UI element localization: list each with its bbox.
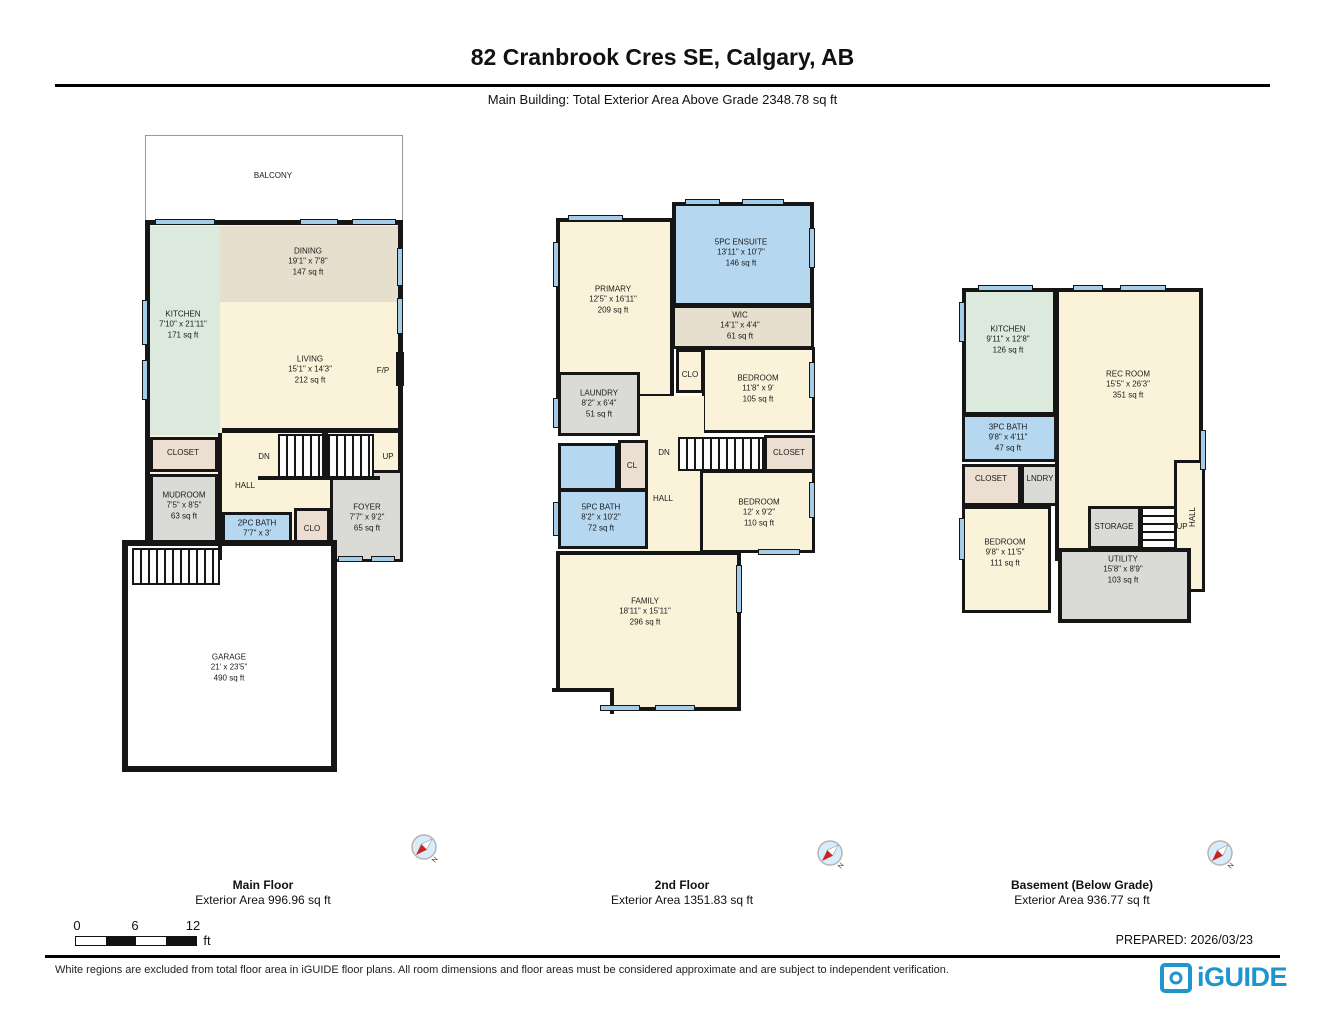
window — [553, 398, 559, 428]
garage-stairs — [132, 548, 220, 585]
window — [300, 219, 338, 225]
room-label-clo-2nd: CLO — [682, 370, 698, 380]
window — [397, 248, 403, 286]
stair-divider — [322, 432, 328, 480]
room-label-5pc-bath: 5PC BATH 8'2" x 10'2" 72 sq ft — [581, 502, 620, 533]
scale-tick-0: 0 — [73, 918, 80, 933]
stairs-label-up-bsmt: UP — [1176, 522, 1187, 532]
room-label-ensuite: 5PC ENSUITE 13'11" x 10'7" 146 sq ft — [715, 237, 767, 268]
room-hall-2nd — [640, 396, 704, 552]
footer-divider — [45, 955, 1280, 958]
wall — [222, 428, 402, 433]
compass-n-label: N — [837, 862, 846, 870]
room-label-closet-main: CLOSET — [167, 448, 199, 458]
room-label-bedroom-1: BEDROOM 11'8" x 9' 105 sq ft — [737, 373, 778, 404]
window — [959, 302, 965, 342]
room-closet-bsmt — [962, 464, 1021, 506]
room-label-primary: PRIMARY 12'5" x 16'11" 209 sq ft — [589, 284, 637, 315]
room-label-bedroom-2: BEDROOM 12' x 9'2" 110 sq ft — [738, 497, 779, 528]
stairs-label-dn-2nd: DN — [658, 448, 670, 458]
compass-icon: N — [1203, 838, 1239, 874]
compass-n-label: N — [1227, 862, 1236, 870]
room-label-bedroom-bsmt: BEDROOM 9'8" x 11'5" 111 sq ft — [984, 537, 1025, 568]
room-label-mudroom: MUDROOM 7'5" x 8'5" 63 sq ft — [162, 490, 205, 521]
iguide-logo: iGUIDE — [1160, 962, 1287, 993]
window — [736, 565, 742, 613]
stairs-label-up-main: UP — [382, 452, 393, 462]
caption-basement: Basement (Below Grade) — [1011, 878, 1153, 892]
room-label-foyer: FOYER 7'7" x 9'2" 65 sq ft — [350, 502, 385, 533]
window — [568, 215, 623, 221]
window — [685, 199, 720, 205]
room-label-garage: GARAGE 21' x 23'5" 490 sq ft — [211, 652, 248, 683]
wall — [258, 476, 380, 480]
room-label-utility: UTILITY 15'8" x 8'9" 103 sq ft — [1103, 554, 1142, 585]
room-label-clo-main: CLO — [304, 524, 320, 534]
wall — [218, 433, 222, 560]
window — [959, 518, 965, 560]
disclaimer-text: White regions are excluded from total fl… — [55, 964, 1035, 976]
room-label-fireplace: F/P — [377, 366, 389, 376]
floor-plan-page: 82 Cranbrook Cres SE, Calgary, AB Main B… — [0, 0, 1325, 1024]
window — [553, 242, 559, 287]
window — [809, 362, 815, 398]
scale-tick-6: 6 — [131, 918, 138, 933]
room-label-hall-2nd: HALL — [653, 494, 673, 504]
room-label-2pc-bath: 2PC BATH 7'7" x 3' — [238, 519, 277, 540]
scale-tick-12: 12 — [186, 918, 200, 933]
caption-basement-area: Exterior Area 936.77 sq ft — [1014, 893, 1149, 907]
window — [1120, 285, 1166, 291]
iguide-logo-text: iGUIDE — [1197, 962, 1287, 993]
window — [809, 228, 815, 268]
scale-segment — [136, 937, 166, 945]
prepared-date: PREPARED: 2026/03/23 — [1116, 933, 1253, 947]
room-label-dining: DINING 19'1" x 7'8" 147 sq ft — [288, 246, 327, 277]
scale-bar — [75, 936, 197, 946]
compass-n-label: N — [431, 856, 440, 864]
window — [553, 502, 559, 536]
window — [1200, 430, 1206, 470]
room-label-wic: WIC 14'1" x 4'4" 61 sq ft — [720, 310, 759, 341]
title-divider — [55, 84, 1270, 87]
window — [155, 219, 215, 225]
compass-icon: N — [813, 838, 849, 874]
window — [1073, 285, 1103, 291]
stairs-up-bsmt — [1141, 506, 1176, 549]
window — [338, 556, 363, 562]
room-cl-blue — [558, 443, 618, 491]
scale-unit: ft — [203, 933, 210, 948]
room-label-lndry: LNDRY — [1027, 474, 1054, 484]
iguide-logo-icon — [1160, 963, 1192, 993]
caption-2nd-floor-area: Exterior Area 1351.83 sq ft — [611, 893, 753, 907]
window — [142, 300, 148, 345]
room-label-living: LIVING 15'1" x 14'3" 212 sq ft — [288, 354, 332, 385]
window — [397, 298, 403, 334]
room-label-laundry: LAUNDRY 8'2" x 6'4" 51 sq ft — [580, 388, 618, 419]
room-label-storage: STORAGE — [1095, 522, 1134, 532]
caption-main-floor-area: Exterior Area 996.96 sq ft — [195, 893, 330, 907]
compass-icon: N — [407, 832, 443, 868]
room-label-hall-main: HALL — [235, 481, 255, 491]
page-title: 82 Cranbrook Cres SE, Calgary, AB — [0, 44, 1325, 71]
window — [758, 549, 800, 555]
window — [655, 705, 695, 711]
stairs-up — [328, 434, 374, 478]
stairs-label-dn-main: DN — [258, 452, 270, 462]
room-label-balcony: BALCONY — [254, 171, 292, 181]
stairs-dn-2nd — [678, 437, 764, 471]
window — [809, 482, 815, 518]
scale-segment — [76, 937, 106, 945]
room-label-kitchen-bsmt: KITCHEN 9'11" x 12'8" 126 sq ft — [986, 324, 1029, 355]
scale-segment — [166, 937, 196, 945]
window — [142, 360, 148, 400]
window — [371, 556, 395, 562]
room-label-rec: REC ROOM 15'5" x 26'3" 351 sq ft — [1106, 369, 1150, 400]
room-label-3pc-bath: 3PC BATH 9'8" x 4'11" 47 sq ft — [989, 422, 1028, 453]
room-label-kitchen-main: KITCHEN 7'10" x 21'11" 171 sq ft — [159, 309, 207, 340]
room-label-cl-2nd: CL — [627, 461, 637, 471]
scale-segment — [106, 937, 136, 945]
caption-main-floor: Main Floor — [233, 878, 294, 892]
window — [600, 705, 640, 711]
fireplace — [396, 352, 404, 386]
room-label-hall-bsmt: HALL — [1188, 507, 1198, 527]
room-label-closet-bsmt: CLOSET — [975, 474, 1007, 484]
window — [978, 285, 1033, 291]
window — [352, 219, 396, 225]
stairs-down — [278, 434, 324, 478]
caption-2nd-floor: 2nd Floor — [655, 878, 710, 892]
room-label-closet-2nd: CLOSET — [773, 448, 805, 458]
room-family — [556, 551, 741, 711]
room-label-family: FAMILY 18'11" x 15'11" 296 sq ft — [619, 596, 671, 627]
page-subtitle: Main Building: Total Exterior Area Above… — [0, 92, 1325, 107]
room-lndry — [1021, 464, 1058, 506]
window — [742, 199, 784, 205]
